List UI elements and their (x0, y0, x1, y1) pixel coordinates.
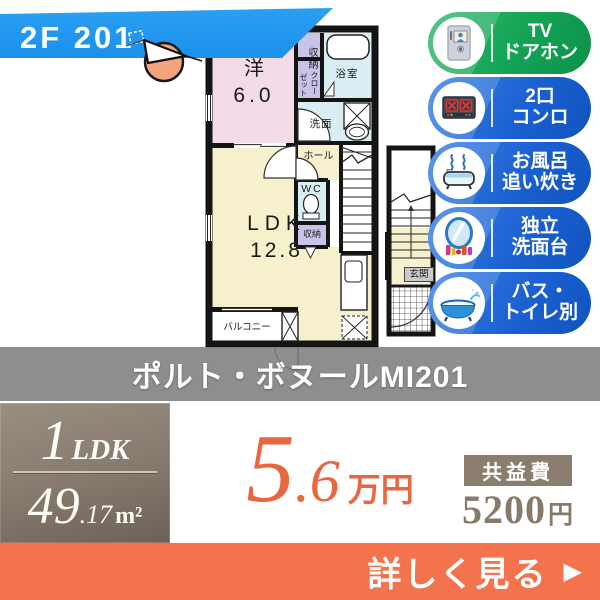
property-name-band: ポルト・ボヌールMI201 (0, 347, 600, 401)
porch-tiles (391, 287, 431, 332)
room-size-ldk: 12.8 (212, 239, 341, 263)
room-label-washroom: 洗面 (298, 116, 344, 131)
layout-number: 1 (41, 409, 69, 473)
room-label-western: 洋 (212, 52, 296, 81)
right-arrow-icon: ▶ (564, 557, 582, 586)
bath-reheating-icon (433, 147, 485, 199)
badge-line1: 独立 (493, 217, 587, 238)
room-label-hall: ホール (296, 147, 341, 162)
rent-value: 5 (246, 408, 295, 529)
listing-card: 2F 201 洋 6.0 LDK 12.8 収納 クロー ゼット 浴室 洗面 ホ… (0, 0, 600, 600)
room-label-entrance: 玄関 (404, 267, 434, 282)
room-size-western: 6.0 (212, 84, 296, 108)
feature-badge-independent-washstand: 独立洗面台 (428, 207, 591, 269)
badge-line1: バス・ (493, 282, 587, 303)
feature-badge-separate-bath-toilet: バス・トイレ別 (428, 272, 591, 334)
refrigerator-space (342, 316, 367, 339)
bathtub (327, 35, 369, 59)
badge-line2: コンロ (493, 108, 587, 129)
badge-line2: 洗面台 (493, 238, 587, 259)
room-label-wc: WC (296, 183, 328, 195)
badge-line2: トイレ別 (493, 303, 587, 324)
entrance-strip (385, 148, 433, 334)
fee-unit: 円 (548, 495, 573, 531)
sink (346, 124, 369, 140)
fee-amount: 5200 (462, 486, 546, 533)
balcony-pillar (282, 312, 298, 341)
kitchen-counter (341, 255, 367, 310)
details-button[interactable]: 詳しく見る ▶ (0, 543, 600, 600)
fee-label: 共益費 (464, 455, 572, 486)
rent-decimal: .6 (295, 447, 340, 516)
area-value: 49 (28, 477, 80, 536)
tv-doorphone-icon (433, 17, 485, 69)
area-unit: m² (115, 503, 142, 530)
details-button-label: 詳しく見る (368, 547, 548, 596)
room-label-storage: 収納 (296, 227, 328, 240)
room-label-bath: 浴室 (322, 66, 372, 81)
layout-area-box: 1 LDK 49 .17 m² (0, 403, 170, 543)
bathtub-icon (433, 277, 485, 329)
badge-line2: 追い炊き (493, 173, 587, 194)
feature-badge-tv-doorphone: TVドアホン (428, 12, 591, 74)
feature-badge-bath-reheating: お風呂追い炊き (428, 142, 591, 204)
property-name: ポルト・ボヌールMI201 (132, 352, 468, 396)
feature-badge-two-burner-stove: 2口コンロ (428, 77, 591, 139)
unit-number: 2F 201 (20, 20, 135, 56)
badge-line1: お風呂 (493, 152, 587, 173)
divider (13, 471, 157, 473)
room-label-closet-col1: クロー (309, 63, 320, 103)
area-decimal: .17 (80, 500, 113, 530)
fee-value: 5200 円 (450, 486, 585, 532)
rent-price: 5 .6 万円 (195, 408, 465, 538)
badge-line2: ドアホン (493, 43, 587, 64)
badge-line1: 2口 (493, 87, 587, 108)
badge-line1: TV (493, 22, 587, 43)
room-label-balcony: バルコニー (212, 319, 282, 333)
washstand-icon (433, 212, 485, 264)
layout-type: LDK (72, 434, 130, 467)
rent-unit: 万円 (348, 463, 414, 511)
stove-icon (433, 82, 485, 134)
compass-icon (124, 30, 210, 98)
room-label-closet-col2: ゼット (298, 65, 309, 105)
